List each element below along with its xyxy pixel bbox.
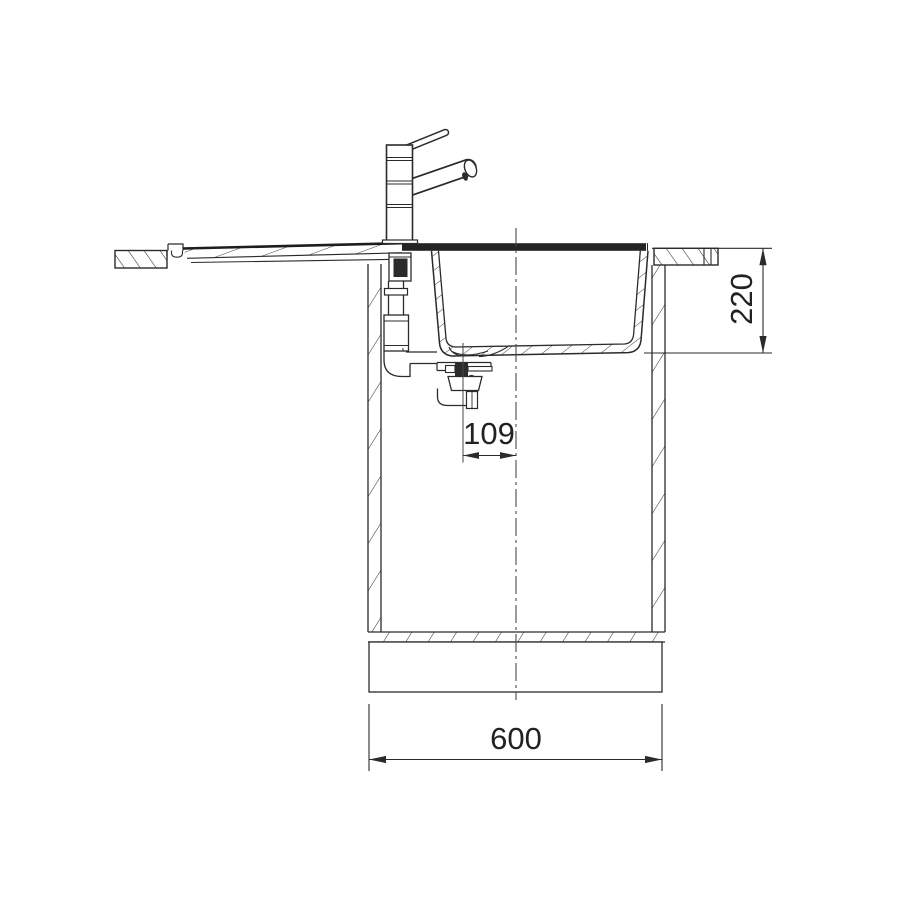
dim-label-drain-offset: 109 — [463, 416, 515, 451]
faucet-base — [383, 240, 418, 244]
clamp-rod — [468, 367, 492, 372]
faucet-spout — [403, 158, 479, 190]
sink-left-lip — [168, 244, 183, 257]
drainboard — [183, 243, 402, 262]
dim-drain-offset: 109 — [463, 416, 516, 459]
sink-section-drawing: 220 109 600 — [0, 0, 899, 899]
arrow-right — [645, 756, 662, 763]
arrow-right — [500, 452, 516, 459]
basin — [432, 251, 649, 357]
countertop-right — [654, 248, 718, 265]
dim-cabinet-width: 600 — [369, 704, 662, 771]
arrow-down — [759, 336, 766, 353]
dim-label-bowl-depth: 220 — [724, 273, 759, 325]
dim-label-cabinet-width: 600 — [490, 721, 542, 756]
faucet — [383, 133, 479, 244]
arrow-left — [463, 452, 479, 459]
technical-drawing: 220 109 600 — [0, 0, 899, 899]
deck-underside-line — [191, 259, 402, 262]
cabinet-left-wall — [368, 264, 381, 632]
drain-assembly — [437, 363, 492, 409]
countertop-left — [115, 251, 167, 269]
waste-housing — [448, 377, 482, 391]
faucet-body — [383, 145, 418, 244]
cabinet-right-wall — [652, 265, 665, 632]
clamp-block — [455, 363, 468, 377]
arrow-left — [369, 756, 386, 763]
overflow-pipe — [384, 253, 437, 377]
bowl-top-rim — [402, 243, 648, 251]
arrow-up — [759, 248, 766, 265]
